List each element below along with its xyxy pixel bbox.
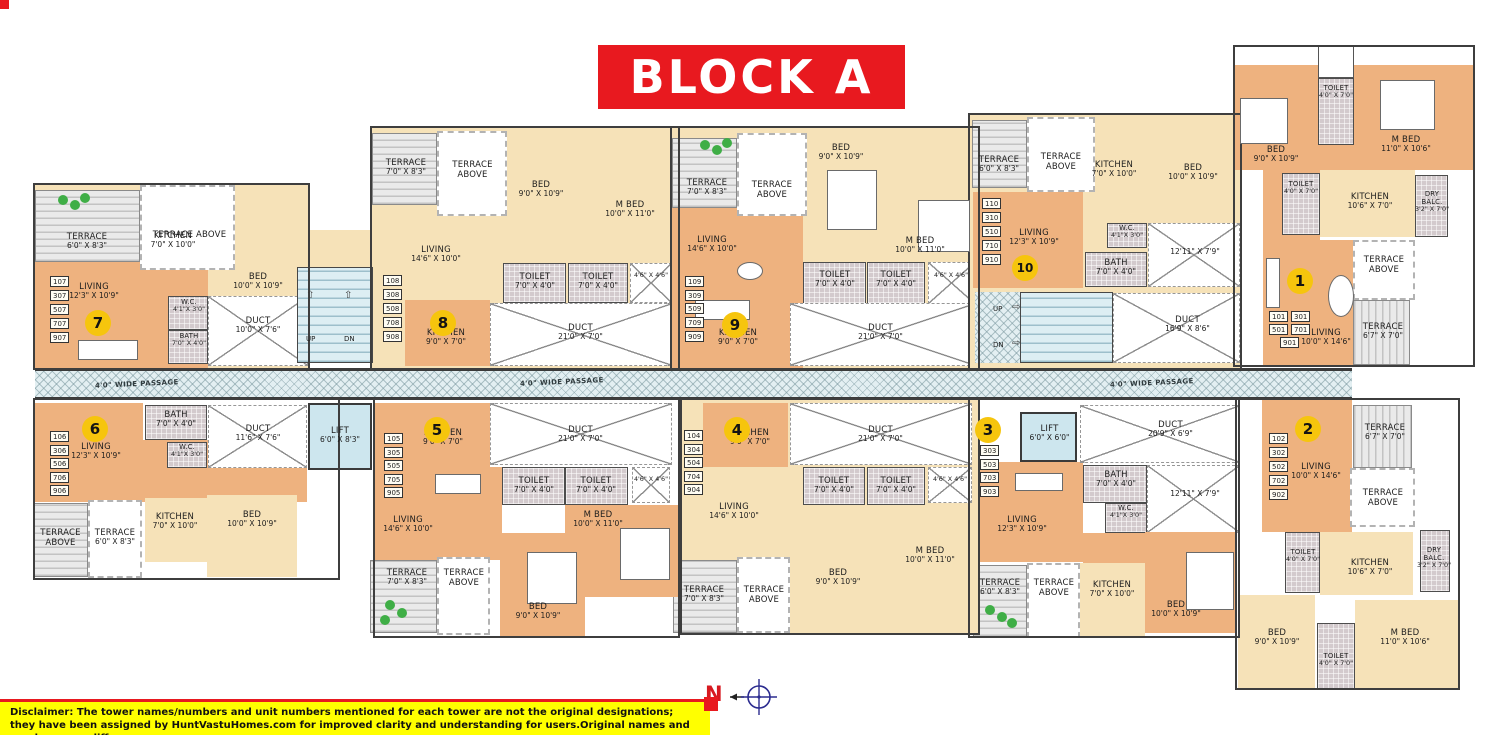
duct-area (928, 262, 975, 304)
unit-number: 310 (982, 212, 1001, 223)
u10-bath-label: BATH7'0" X 4'0" (1085, 258, 1147, 277)
room-dims: 4'6" X 4'6" (634, 272, 668, 280)
sofa-icon (78, 340, 138, 360)
toilet-shaft (1318, 45, 1354, 78)
unit-number: 907 (50, 332, 69, 343)
unit-number: 702 (1269, 475, 1288, 486)
u2-kitchen-label: KITCHEN10'6" X 7'0" (1338, 558, 1402, 577)
red-line (0, 699, 706, 702)
room-dims: 10'0" X 11'0" (895, 246, 945, 255)
unit-number: 305 (384, 447, 403, 458)
room-dims: 10'0" X 10'9" (227, 520, 277, 529)
room-dims: 10'0" X 7'6" (236, 326, 281, 335)
room-dims: 4'0" X 7'0" (1319, 92, 1353, 100)
red-corner-mark (0, 0, 9, 9)
u4-terrace-above-label: TERRACE ABOVE (738, 585, 790, 605)
u4-mbed-label: M BED10'0" X 11'0" (892, 546, 968, 565)
terrace-above-area (737, 133, 807, 216)
u1-dry-balc-label: DRY BALC.3'2" X 7'0" (1414, 190, 1450, 214)
unit-number: 308 (383, 289, 402, 300)
red-square-mark (704, 697, 718, 711)
duct-area (630, 263, 672, 303)
u9-bed-label: BED9'0" X 10'9" (805, 143, 877, 162)
u6-wc-label: W.C.4'1"X 3'0" (167, 443, 207, 459)
plant-icon (380, 615, 390, 625)
room-dims: 7'0" X 4'0" (172, 340, 206, 348)
unit-badge-4: 4 (724, 417, 750, 443)
unit-badge-2: 2 (1295, 416, 1321, 442)
room-dims: 10'0" X 10'9" (1168, 173, 1218, 182)
terrace-deck (973, 565, 1027, 637)
u9-duct-small-label: 4'6" X 4'6" (928, 272, 974, 280)
u8-terrace-label: TERRACE7'0" X 8'3" (377, 158, 435, 177)
terrace-deck (972, 120, 1027, 188)
u2-living-label: LIVING10'0" X 14'6" (1284, 462, 1348, 481)
u3-terrace-label: TERRACE6'0" X 8'3" (972, 578, 1028, 597)
u4-terrace-label: TERRACE7'0" X 8'3" (674, 585, 734, 604)
unit-number: 101 (1269, 311, 1288, 322)
unit-number: 707 (50, 318, 69, 329)
u7-bath-label: BATH7'0" X 4'0" (170, 332, 208, 348)
plant-icon (385, 600, 395, 610)
u8-toilet-label: TOILET7'0" X 4'0" (568, 272, 628, 291)
unit-number: 508 (383, 303, 402, 314)
room-name: TERRACE ABOVE (440, 160, 505, 180)
room-dims: 9'0" X 10'9" (516, 612, 561, 621)
unit-number: 710 (982, 240, 1001, 251)
unit-number: 901 (1280, 337, 1299, 348)
unit-number: 504 (684, 457, 703, 468)
u6-terrace-above-label: TERRACE ABOVE (33, 528, 88, 548)
unit-badge-3: 3 (975, 417, 1001, 443)
unit-number: 307 (50, 290, 69, 301)
unit-number: 501 (1269, 324, 1288, 335)
u4-duct-label: DUCT21'0" X 7'0" (838, 425, 923, 444)
room-dims: 9'0" X 10'9" (1255, 638, 1300, 647)
unit-number: 910 (982, 254, 1001, 265)
unit-number: 902 (1269, 489, 1288, 500)
room-dims: 4'1"X 3'0" (173, 306, 205, 314)
up-arrow-icon: ⇧ (344, 290, 352, 301)
u6-bed-label: BED10'0" X 10'9" (216, 510, 288, 529)
room-dims: 4'6" X 4'6" (634, 476, 668, 484)
u3-duct-flat-label: 12'11" X 7'9" (1155, 490, 1235, 499)
room-dims: 6'0" X 8'3" (980, 588, 1020, 597)
u5-mbed-label: M BED10'0" X 11'0" (560, 510, 636, 529)
unit-number: 510 (982, 226, 1001, 237)
bed-floor (207, 495, 297, 577)
unit-number: 306 (50, 445, 69, 456)
unit-number: 309 (685, 290, 704, 301)
duct-area (632, 467, 670, 503)
unit-number: 506 (50, 458, 69, 469)
terrace-above-area (1027, 563, 1080, 638)
room-dims: 12'3" X 10'9" (69, 292, 119, 301)
room-dims: 7'0" X 4'0" (1096, 268, 1136, 277)
room-dims: 10'0" X 11'0" (605, 210, 655, 219)
room-dims: 3'2" X 7'0" (1415, 206, 1449, 214)
plant-icon (70, 200, 80, 210)
room-dims: 9'0" X 10'9" (1254, 155, 1299, 164)
room-dims: 9'0" X 10'9" (519, 190, 564, 199)
room-dims: 7'0" X 10'0" (151, 241, 196, 250)
disclaimer: Disclaimer: The tower names/numbers and … (0, 702, 710, 735)
room-dims: 12'11" X 7'9" (1170, 248, 1220, 257)
unit-number: 303 (980, 445, 999, 456)
u2-terrace-label: TERRACE6'7" X 7'0" (1357, 423, 1413, 442)
disclaimer-line1: Disclaimer: The tower names/numbers and … (10, 706, 700, 719)
unit-number: 708 (383, 317, 402, 328)
u10-kitchen-label: KITCHEN7'0" X 10'0" (1080, 160, 1148, 179)
u6-kitchen-label: KITCHEN7'0" X 10'0" (142, 512, 208, 531)
plant-icon (985, 605, 995, 615)
room-dims: 3'2" X 7'0" (1417, 562, 1451, 570)
u2-bed-label: BED9'0" X 10'9" (1244, 628, 1310, 647)
room-name: DRY BALC. (1416, 546, 1452, 562)
page-title: BLOCK A (598, 45, 905, 109)
u1-mbed-label: M BED11'0" X 10'6" (1372, 135, 1440, 154)
room-name: TERRACE ABOVE (1028, 578, 1080, 598)
room-dims: 7'0" X 4'0" (576, 486, 616, 495)
room-dims: 20'9" X 6'9" (1148, 430, 1193, 439)
duct-area (928, 467, 972, 503)
u5-living-label: LIVING14'6" X 10'0" (370, 515, 446, 534)
u1-toilet-label: TOILET4'0" X 7'0" (1317, 84, 1355, 100)
u2-toilet-label: TOILET4'0" X 7'0" (1318, 652, 1354, 668)
unit-number: 905 (384, 487, 403, 498)
unit-number: 507 (50, 304, 69, 315)
unit-number: 503 (980, 459, 999, 470)
u4-toilet-label: TOILET7'0" X 4'0" (805, 476, 863, 495)
dining-table-icon (1328, 275, 1354, 317)
room-dims: 6'0" X 8'3" (979, 165, 1019, 174)
unit-number: 505 (384, 460, 403, 471)
up-arrow-icon: ⇧ (306, 290, 314, 301)
u6-terrace-label: TERRACE6'0" X 8'3" (88, 528, 142, 547)
unit-number: 110 (982, 198, 1001, 209)
u5-toilet-label: TOILET7'0" X 4'0" (504, 476, 564, 495)
room-dims: 10'0" X 10'9" (233, 282, 283, 291)
room-dims: 14'6" X 10'0" (709, 512, 759, 521)
room-dims: 9'0" X 7'0" (426, 338, 466, 347)
room-dims: 21'0" X 7'0" (858, 333, 903, 342)
table-icon (737, 262, 763, 280)
unit-number: 909 (685, 331, 704, 342)
u2-terrace-above-label: TERRACE ABOVE (1354, 488, 1412, 508)
u6-duct-label: DUCT11'6" X 7'6" (218, 424, 298, 443)
compass-icon (728, 676, 780, 718)
u2-toilet-label: TOILET4'0" X 7'0" (1285, 548, 1321, 564)
u9-toilet-label: TOILET7'0" X 4'0" (868, 270, 924, 289)
staircase (297, 267, 373, 363)
room-dims: 6'0" X 8'3" (95, 538, 135, 547)
room-dims: 7'0" X 4'0" (515, 282, 555, 291)
unit-badge-1: 1 (1287, 268, 1313, 294)
unit-badge-8: 8 (430, 310, 456, 336)
u9-living-label: LIVING14'6" X 10'0" (674, 235, 750, 254)
u3-wc-label: W.C.4'1"X 3'0" (1106, 504, 1146, 520)
u4-living-label: LIVING14'6" X 10'0" (696, 502, 772, 521)
unit-number: 705 (384, 474, 403, 485)
u1-terrace-above-label: TERRACE ABOVE (1355, 255, 1413, 275)
u5-duct-small-label: 4'6" X 4'6" (630, 476, 672, 484)
room-dims: 12'3" X 10'9" (1009, 238, 1059, 247)
unit-number: 102 (1269, 433, 1288, 444)
room-dims: 7'0" X 10'0" (153, 522, 198, 531)
u1-bed-label: BED9'0" X 10'9" (1243, 145, 1309, 164)
stairs-up-label: UP (993, 305, 1002, 313)
unit-number: 509 (685, 303, 704, 314)
u9-mbed-label: M BED10'0" X 11'0" (882, 236, 958, 255)
plant-icon (58, 195, 68, 205)
room-dims: 4'0" X 7'0" (1284, 188, 1318, 196)
plant-icon (722, 138, 732, 148)
duct-area (1147, 465, 1240, 533)
room-dims: 7'0" X 8'3" (687, 188, 727, 197)
u8-toilet-label: TOILET7'0" X 4'0" (505, 272, 565, 291)
room-dims: 7'0" X 8'3" (387, 578, 427, 587)
u9-terrace-above-label: TERRACE ABOVE (740, 180, 804, 200)
u3-bath-label: BATH7'0" X 4'0" (1085, 470, 1147, 489)
u5-terrace-above-label: TERRACE ABOVE (438, 568, 490, 588)
room-dims: 6'7" X 7'0" (1365, 433, 1405, 442)
u10-terrace-label: TERRACE6'0" X 8'3" (970, 155, 1028, 174)
disclaimer-line2: they have been assigned by HuntVastuHome… (10, 719, 700, 735)
unit-number: 109 (685, 276, 704, 287)
plant-icon (397, 608, 407, 618)
plant-icon (997, 612, 1007, 622)
u10-bed-label: BED10'0" X 10'9" (1158, 163, 1228, 182)
unit-number: 302 (1269, 447, 1288, 458)
room-dims: 12'3" X 10'9" (71, 452, 121, 461)
unit-number: 904 (684, 484, 703, 495)
u5-duct-label: DUCT21'0" X 7'0" (538, 425, 623, 444)
u5-toilet-label: TOILET7'0" X 4'0" (566, 476, 626, 495)
room-dims: 10'0" X 14'6" (1291, 472, 1341, 481)
u10-living-label: LIVING12'3" X 10'9" (998, 228, 1070, 247)
unit-badge-10: 10 (1012, 255, 1038, 281)
room-name: TERRACE ABOVE (33, 528, 88, 548)
u2-dry-balc-label: DRY BALC.3'2" X 7'0" (1416, 546, 1452, 570)
room-dims: 9'0" X 7'0" (718, 338, 758, 347)
u8-living-label: LIVING14'6" X 10'0" (398, 245, 474, 264)
room-dims: 9'0" X 10'9" (816, 578, 861, 587)
room-dims: 11'0" X 10'6" (1380, 638, 1430, 647)
room-name: TERRACE ABOVE (738, 585, 790, 605)
unit-number: 107 (50, 276, 69, 287)
room-dims: 4'1"X 3'0" (1110, 512, 1142, 520)
plant-icon (80, 193, 90, 203)
room-dims: 10'0" X 14'6" (1301, 338, 1351, 347)
unit-number: 301 (1291, 311, 1310, 322)
u6-living-label: LIVING12'3" X 10'9" (60, 442, 132, 461)
room-name: TERRACE ABOVE (438, 568, 490, 588)
lift-label: LIFT6'0" X 8'3" (312, 426, 368, 445)
unit-number: 709 (685, 317, 704, 328)
room-dims: 11'6" X 7'6" (236, 434, 281, 443)
room-dims: 16'9" X 8'6" (1165, 325, 1210, 334)
room-name: DRY BALC. (1414, 190, 1450, 206)
room-dims: 7'0" X 4'0" (876, 280, 916, 289)
unit-badge-6: 6 (82, 416, 108, 442)
u10-duct-label: DUCT16'9" X 8'6" (1145, 315, 1230, 334)
stairs-up-label: UP (306, 335, 315, 343)
duct-center-label: DUCT20'9" X 6'9" (1128, 420, 1213, 439)
sofa-icon (1266, 258, 1280, 308)
u1-terrace-label: TERRACE6'7" X 7'0" (1355, 322, 1411, 341)
room-dims: 7'0" X 4'0" (578, 282, 618, 291)
u9-duct-label: DUCT21'0" X 7'0" (838, 323, 923, 342)
room-dims: 11'0" X 10'6" (1381, 145, 1431, 154)
bed-icon (620, 528, 670, 580)
u3-living-label: LIVING12'3" X 10'9" (986, 515, 1058, 534)
u4-duct-small-label: 4'6" X 4'6" (928, 476, 972, 484)
room-dims: 7'0" X 4'0" (156, 420, 196, 429)
room-name: TERRACE ABOVE (1354, 488, 1412, 508)
unit-number: 304 (684, 444, 703, 455)
u1-kitchen-label: KITCHEN10'6" X 7'0" (1338, 192, 1402, 211)
room-dims: 7'0" X 10'0" (1092, 170, 1137, 179)
bed-icon (1240, 98, 1288, 144)
room-dims: 7'0" X 8'3" (386, 168, 426, 177)
room-dims: 12'11" X 7'9" (1170, 490, 1220, 499)
unit-number: 105 (384, 433, 403, 444)
room-dims: 7'0" X 10'0" (1090, 590, 1135, 599)
unit-number: 104 (684, 430, 703, 441)
u7-wc-label: W.C.4'1"X 3'0" (170, 298, 208, 314)
u7-bed-label: BED10'0" X 10'9" (222, 272, 294, 291)
room-dims: 14'6" X 10'0" (383, 525, 433, 534)
unit-number: 703 (980, 472, 999, 483)
unit-number: 903 (980, 486, 999, 497)
hall-floor (1083, 533, 1147, 563)
u7-terrace-label: TERRACE6'0" X 8'3" (37, 232, 137, 251)
room-dims: 14'6" X 10'0" (687, 245, 737, 254)
room-dims: 10'0" X 11'0" (573, 520, 623, 529)
sofa-icon (435, 474, 481, 494)
bed-icon (827, 170, 877, 230)
terrace-above-area (140, 185, 235, 270)
room-name: TERRACE ABOVE (740, 180, 804, 200)
u3-kitchen-label: KITCHEN7'0" X 10'0" (1078, 580, 1146, 599)
u8-bed-label: BED9'0" X 10'9" (505, 180, 577, 199)
room-dims: 6'7" X 7'0" (1363, 332, 1403, 341)
u7-duct-label: DUCT10'0" X 7'6" (218, 316, 298, 335)
room-dims: 7'0" X 4'0" (514, 486, 554, 495)
unit-number: 106 (50, 431, 69, 442)
u10-wc-label: W.C.4'1"X 3'0" (1107, 224, 1147, 240)
room-dims: 7'0" X 8'3" (684, 595, 724, 604)
unit-badge-5: 5 (424, 417, 450, 443)
u7-kitchen-label: KITCHEN7'0" X 10'0" (133, 231, 213, 250)
room-dims: 4'0" X 7'0" (1286, 556, 1320, 564)
room-dims: 9'0" X 10'9" (819, 153, 864, 162)
u3-terrace-above-label: TERRACE ABOVE (1028, 578, 1080, 598)
lobby-floor (298, 230, 373, 267)
bed-icon (1380, 80, 1435, 130)
room-dims: 7'0" X 4'0" (815, 280, 855, 289)
u3-bed-label: BED10'0" X 10'9" (1140, 600, 1212, 619)
unit-number: 704 (684, 471, 703, 482)
plant-icon (1007, 618, 1017, 628)
stairs-dn-label: DN (993, 341, 1004, 349)
u6-bath-label: BATH7'0" X 4'0" (145, 410, 207, 429)
room-name: TERRACE ABOVE (1355, 255, 1413, 275)
right-arrow-icon: ⇨ (1012, 302, 1020, 313)
u8-duct-label: DUCT21'0" X 7'0" (538, 323, 623, 342)
room-dims: 10'0" X 11'0" (905, 556, 955, 565)
room-dims: 4'0" X 7'0" (1319, 660, 1353, 668)
room-dims: 21'0" X 7'0" (558, 333, 603, 342)
plant-icon (700, 140, 710, 150)
u5-bed-label: BED9'0" X 10'9" (502, 602, 574, 621)
room-dims: 7'0" X 4'0" (814, 486, 854, 495)
room-dims: 4'6" X 4'6" (934, 272, 968, 280)
floor-plan: 4'0" WIDE PASSAGE 4'0" WIDE PASSAGE 4'0"… (0, 0, 1500, 735)
u8-terrace-above-label: TERRACE ABOVE (440, 160, 505, 180)
sofa-icon (1015, 473, 1063, 491)
u9-terrace-label: TERRACE7'0" X 8'3" (678, 178, 736, 197)
plant-icon (712, 145, 722, 155)
right-arrow-icon: ⇨ (1012, 338, 1020, 349)
room-dims: 4'1"X 3'0" (171, 451, 203, 459)
u1-toilet-label: TOILET4'0" X 7'0" (1283, 180, 1319, 196)
u5-terrace-label: TERRACE7'0" X 8'3" (378, 568, 436, 587)
u8-duct-small-label: 4'6" X 4'6" (630, 272, 672, 280)
room-dims: 6'0" X 8'3" (320, 436, 360, 445)
room-dims: 7'0" X 4'0" (876, 486, 916, 495)
room-dims: 21'0" X 7'0" (558, 435, 603, 444)
room-dims: 6'0" X 8'3" (67, 242, 107, 251)
unit-number: 502 (1269, 461, 1288, 472)
u8-mbed-label: M BED10'0" X 11'0" (592, 200, 668, 219)
u4-toilet-label: TOILET7'0" X 4'0" (868, 476, 924, 495)
kitchen-floor (1080, 563, 1145, 637)
room-dims: 12'3" X 10'9" (997, 525, 1047, 534)
stairs-dn-label: DN (344, 335, 355, 343)
unit-number: 706 (50, 472, 69, 483)
u9-toilet-label: TOILET7'0" X 4'0" (806, 270, 864, 289)
staircase (1020, 292, 1113, 363)
bed-icon (527, 552, 577, 604)
unit-number: 908 (383, 331, 402, 342)
room-dims: 10'6" X 7'0" (1348, 202, 1393, 211)
room-dims: 6'0" X 6'0" (1029, 434, 1069, 443)
u2-mbed-label: M BED11'0" X 10'6" (1370, 628, 1440, 647)
unit-badge-9: 9 (722, 312, 748, 338)
room-dims: 4'6" X 4'6" (933, 476, 967, 484)
u10-duct-flat-label: 12'11" X 7'9" (1155, 248, 1235, 257)
room-dims: 10'0" X 10'9" (1151, 610, 1201, 619)
unit-number: 108 (383, 275, 402, 286)
unit-number: 701 (1291, 324, 1310, 335)
room-dims: 7'0" X 4'0" (1096, 480, 1136, 489)
lift-label: LIFT6'0" X 6'0" (1022, 424, 1077, 443)
room-dims: 14'6" X 10'0" (411, 255, 461, 264)
unit-badge-7: 7 (85, 310, 111, 336)
unit-number: 906 (50, 485, 69, 496)
room-dims: 10'6" X 7'0" (1348, 568, 1393, 577)
room-dims: 21'0" X 7'0" (858, 435, 903, 444)
u4-bed-label: BED9'0" X 10'9" (802, 568, 874, 587)
room-dims: 4'1"X 3'0" (1111, 232, 1143, 240)
